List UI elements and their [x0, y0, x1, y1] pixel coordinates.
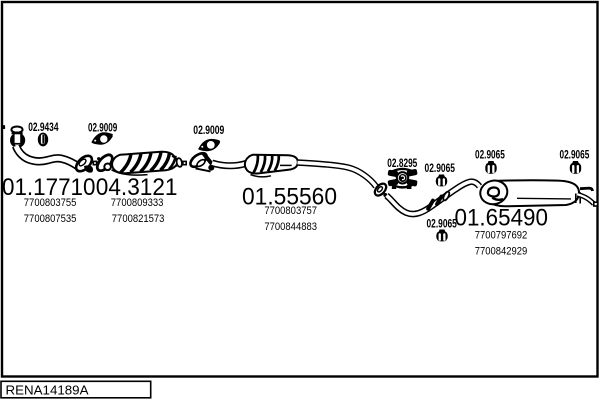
svg-text:02.9065: 02.9065: [475, 149, 505, 162]
svg-text:02.9065: 02.9065: [560, 149, 590, 162]
svg-text:7700807535: 7700807535: [24, 213, 77, 225]
svg-text:01.65490: 01.65490: [455, 205, 549, 232]
svg-text:7700797692: 7700797692: [475, 229, 528, 241]
svg-text:7700842929: 7700842929: [475, 245, 528, 257]
svg-text:7700803757: 7700803757: [264, 205, 317, 217]
svg-text:02.9434: 02.9434: [28, 121, 59, 134]
svg-text:RENA14189A: RENA14189A: [6, 383, 89, 398]
svg-text:7700844883: 7700844883: [264, 221, 317, 233]
svg-text:02.9065: 02.9065: [427, 218, 458, 231]
svg-text:7700821573: 7700821573: [112, 213, 165, 225]
svg-text:02.9065: 02.9065: [425, 162, 456, 175]
svg-text:02.9009: 02.9009: [88, 121, 118, 134]
svg-text:7700803755: 7700803755: [24, 197, 77, 209]
svg-text:02.9009: 02.9009: [193, 124, 224, 137]
svg-text:7700809333: 7700809333: [111, 197, 164, 209]
svg-text:02.8295: 02.8295: [387, 157, 417, 170]
